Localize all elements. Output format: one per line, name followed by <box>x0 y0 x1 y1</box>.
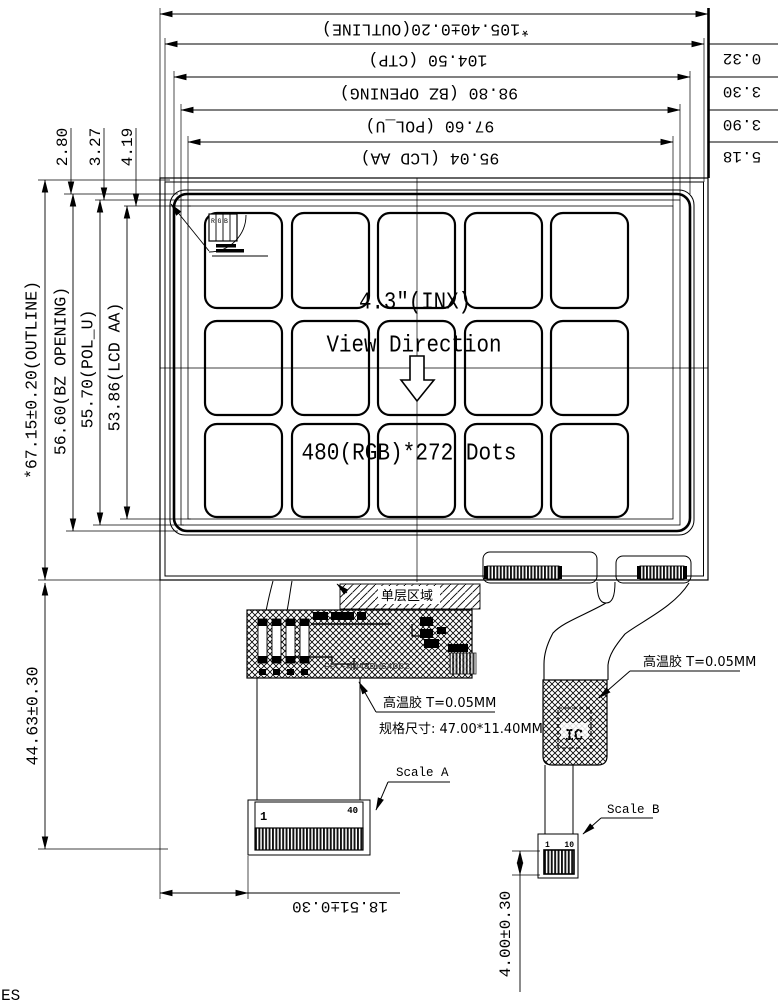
scale-a-label: Scale A <box>396 766 449 780</box>
display-annotations: 4.3"(INX) View Direction 480(RGB)*272 Do… <box>302 290 517 468</box>
left-dimension-texts: *67.15±0.20(OUTLINE) 56.60(BZ OPENING) 5… <box>23 281 125 479</box>
connector-b-pin10: 10 <box>564 841 574 850</box>
dim-right-offset-1: 0.32 <box>723 49 761 67</box>
dim-right-offset-4: 5.18 <box>723 147 761 165</box>
spec-size-label: 规格尺寸: 47.00*11.40MM <box>379 721 543 737</box>
dim-right-offset-2: 3.30 <box>723 82 761 100</box>
dim-conn-a-offset: 18.51±0.30 <box>292 897 388 915</box>
fpc-part-number: FPC-H043DWG4062 <box>324 661 410 672</box>
rgb-subpixel-label: RGB <box>211 218 231 225</box>
dim-conn-b-tail: 4.00±0.30 <box>497 891 515 977</box>
display-size-label: 4.3"(INX) <box>359 290 471 317</box>
dim-lcd-aa-width: 95.04 (LCD AA) <box>361 149 500 168</box>
dim-ctp-width: 104.50 (CTP) <box>369 51 488 70</box>
fpc-right-strip: IC 高温胶 T=0.05MM 1 10 Scale B <box>538 583 756 878</box>
right-edge-offset-texts: 0.32 3.30 3.90 5.18 <box>723 49 761 165</box>
dim-bz-height: 56.60(BZ OPENING) <box>52 287 71 455</box>
view-direction-arrow-icon <box>401 356 434 401</box>
tape-label-right: 高温胶 T=0.05MM <box>643 654 756 670</box>
tape-label-left: 高温胶 T=0.05MM <box>383 695 496 711</box>
dim-pol-height: 55.70(POL_U) <box>79 310 98 429</box>
corner-note-partial: ES <box>1 987 20 1000</box>
connector-a: 1 40 <box>248 800 370 855</box>
dim-bz-opening-width: 98.80 (BZ OPENING) <box>340 84 518 103</box>
scale-b-label: Scale B <box>607 803 660 817</box>
dim-top-offset-aa: 4.19 <box>119 128 137 166</box>
resolution-label: 480(RGB)*272 Dots <box>302 441 517 468</box>
dim-right-offset-3: 3.90 <box>723 115 761 133</box>
dim-top-offset-pol: 3.27 <box>87 128 105 166</box>
lcd-module-outline-drawing: *105.40±0.20(OUTLINE) 104.50 (CTP) 98.80… <box>0 0 778 1000</box>
connector-b-pin1: 1 <box>545 841 550 850</box>
connector-a-pin40: 40 <box>347 806 358 816</box>
dim-fpc-length: 44.63±0.30 <box>24 666 43 765</box>
single-layer-label: 单层区域 <box>381 589 433 604</box>
left-top-offset-texts: 2.80 3.27 4.19 <box>54 128 137 166</box>
bonding-pads <box>483 552 691 603</box>
connector-b: 1 10 <box>538 834 578 878</box>
dim-aa-height: 53.86(LCD AA) <box>106 303 125 432</box>
top-dimension-texts: *105.40±0.20(OUTLINE) 104.50 (CTP) 98.80… <box>322 20 530 168</box>
fpc-stiffener-right <box>543 680 607 765</box>
dim-outline-width: *105.40±0.20(OUTLINE) <box>322 20 530 39</box>
bonding-comb-left <box>487 566 559 579</box>
pixel-structure-detail: RGB <box>171 204 268 256</box>
dim-pol-width: 97.60 (POL_U) <box>366 117 495 136</box>
dim-outline-height: *67.15±0.20(OUTLINE) <box>23 281 42 479</box>
dim-top-offset-bz: 2.80 <box>54 128 72 166</box>
ic-label: IC <box>565 728 583 745</box>
bonding-comb-right <box>640 566 684 579</box>
drawing-canvas: *105.40±0.20(OUTLINE) 104.50 (CTP) 98.80… <box>0 0 778 1000</box>
panel-outline <box>160 178 708 580</box>
fpc-main: 单层区域 <box>247 581 543 855</box>
connector-a-pin1: 1 <box>260 810 267 824</box>
